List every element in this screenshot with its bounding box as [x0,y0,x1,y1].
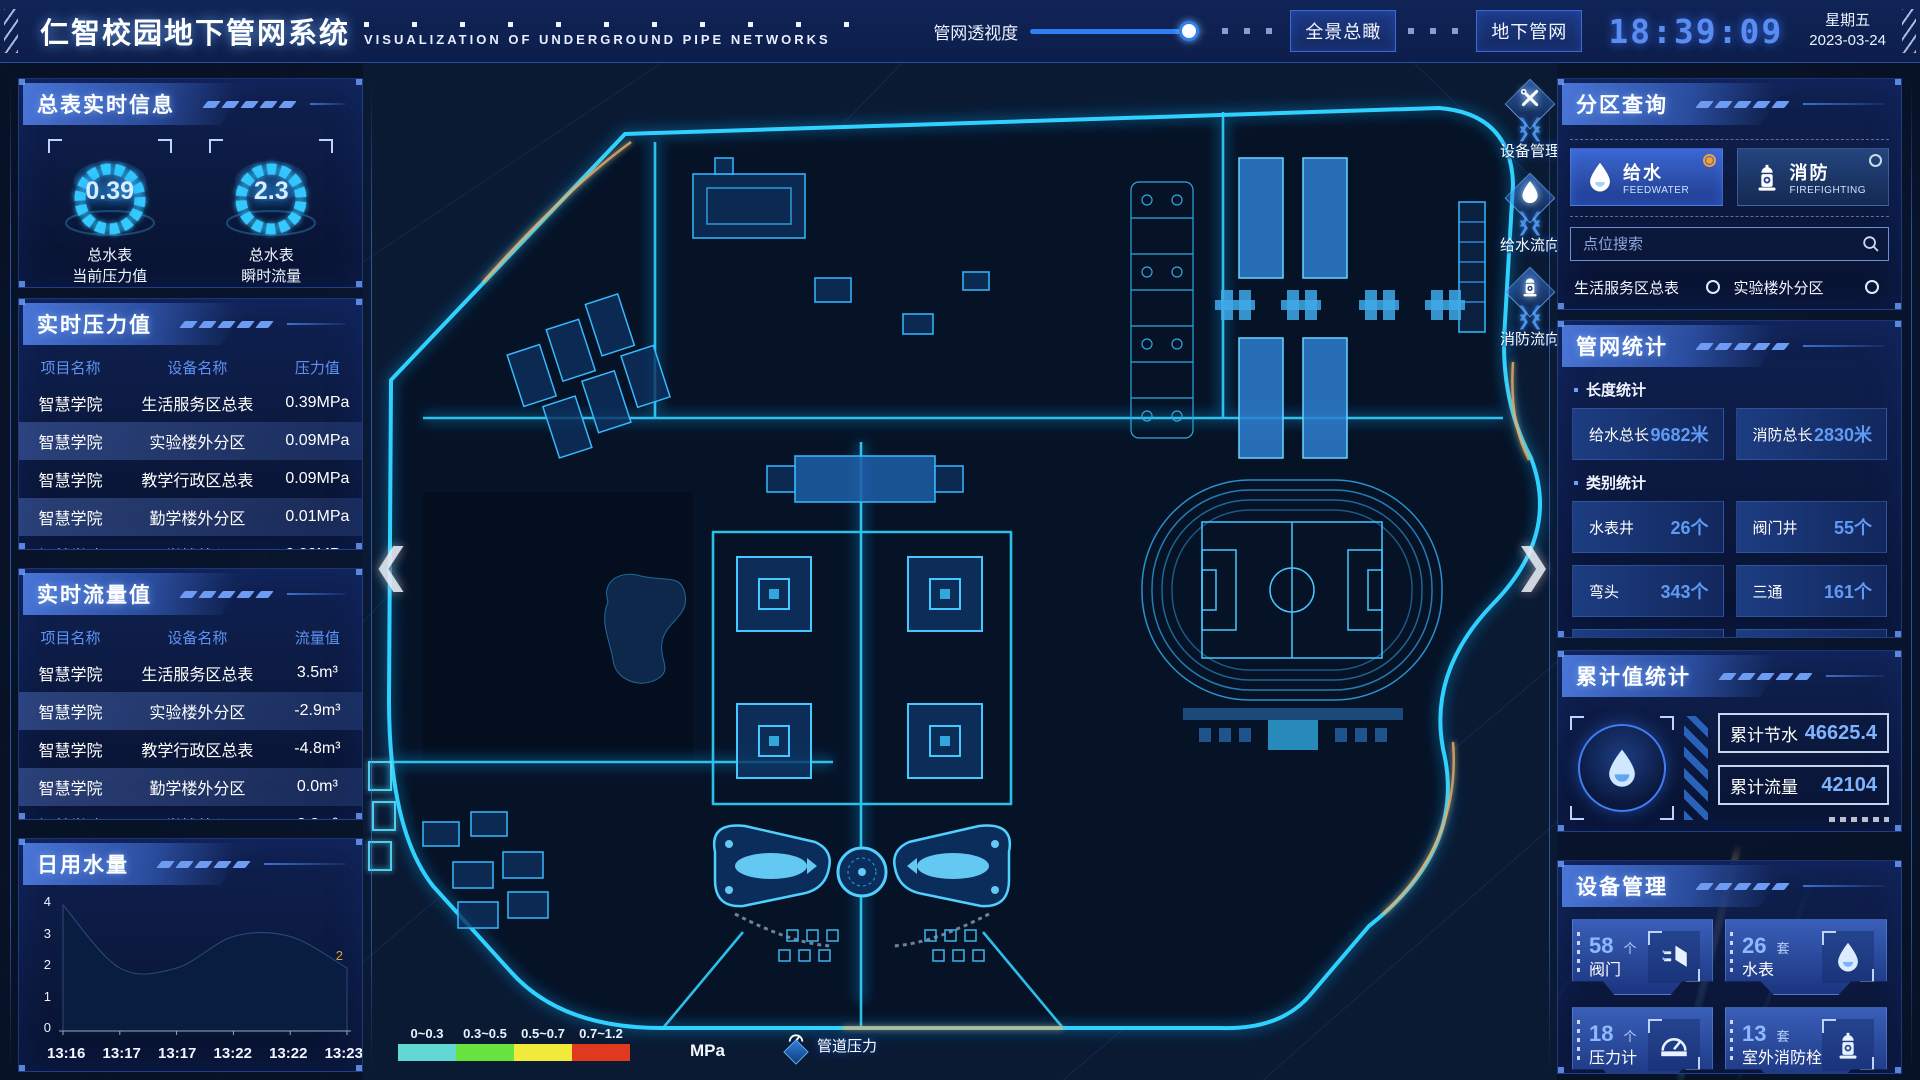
device-card-water-meters[interactable]: 26套 水表 [1725,919,1887,995]
slider-thumb[interactable] [1179,21,1199,41]
legend-swatch [456,1044,514,1061]
chart-x-tick: 13:16 [47,1045,85,1062]
list-item[interactable]: 实验楼外分区 [1730,269,1890,305]
water-drop-icon [1578,724,1666,812]
chart-y-axis: 01234 [31,893,53,1043]
panel-master-realtime-info: 总表实时信息 0.39 总水表 当前压力 [18,78,363,288]
left-rail-inner [371,80,372,1072]
pressure-gauge-icon [1648,1019,1700,1071]
panel-title: 实时流量值 [37,579,152,609]
panel-daily-water-usage: 日用水量 01234 2 13:1613:1713:1713:2213:2213… [18,838,363,1072]
app-subtitle: VISUALIZATION OF UNDERGROUND PIPE NETWOR… [364,32,864,47]
chart-x-tick: 13:22 [269,1045,307,1062]
stat-water-meter-wells: 水表井 26个 [1572,501,1724,553]
slashes-decoration [1698,343,1793,350]
gauge-master-flow: 2.3 总水表 瞬时流量 [201,141,341,287]
flow-table: 项目名称 设备名称 流量值 智慧学院生活服务区总表3.5m³ 智慧学院实验楼外分… [19,621,362,820]
table-row[interactable]: 智慧学院生活服务区总表0.39MPa [19,384,362,422]
top-header: 仁智校园地下管网系统 VISUALIZATION OF UNDERGROUND … [0,0,1920,63]
zone-point-list: 生活服务区总表 实验楼外分区 教学行政区总表 勤学楼外分区 砺学楼外分区 宿舍区… [1570,269,1889,310]
tab-feedwater[interactable]: 给水 FEEDWATER [1570,148,1723,206]
gauge-ring: 2.3 [211,147,331,243]
chart-plot-area: 2 [57,897,353,1043]
chart-y-tick: 0 [44,1020,51,1035]
panel-title: 分区查询 [1576,89,1668,119]
legend-unit: MPa [690,1041,725,1061]
map-arrow-right[interactable]: ❯ [1514,542,1553,588]
clock-date: 2023-03-24 [1809,31,1886,51]
stat-valve-wells: 阀门井 55个 [1736,501,1888,553]
radio-unselected-icon[interactable] [1706,280,1720,294]
device-card-pressure-gauges[interactable]: 18个 压力计 [1572,1007,1713,1074]
water-drop-icon [1583,160,1617,194]
chart-y-tick: 1 [44,989,51,1004]
right-rail [1911,80,1912,1072]
water-drop-icon [1508,170,1552,214]
dots-separator [1408,28,1464,34]
dashes-decoration [1829,817,1889,822]
clock-weekday: 星期五 [1825,11,1870,31]
category-stats-label: 类别统计 [1574,472,1901,493]
chart-x-tick: 13:17 [103,1045,141,1062]
underground-pipes-button[interactable]: 地下管网 [1476,10,1582,52]
stat-elbows: 弯头 343个 [1572,565,1724,617]
table-row[interactable]: 智慧学院教学行政区总表-4.8m³ [19,730,362,768]
stat-feedwater-length: 给水总长 9682米 [1572,408,1724,460]
table-row[interactable]: 智慧学院砺学楼外分区2.3m³ [19,806,362,820]
length-stats-label: 长度统计 [1574,379,1901,400]
chart-y-tick: 3 [44,926,51,941]
panel-device-management: 设备管理 58个 阀门 26套 [1557,860,1902,1074]
table-row[interactable]: 智慧学院生活服务区总表3.5m³ [19,654,362,692]
chart-y-tick: 4 [44,894,51,909]
list-item[interactable]: 教学行政区总表 [1570,305,1730,310]
gauge-master-pressure: 0.39 总水表 当前压力值 [40,141,180,287]
panel-realtime-flow: 实时流量值 项目名称 设备名称 流量值 智慧学院生活服务区总表3.5m³ 智慧学… [18,568,363,820]
legend-swatch [398,1044,456,1061]
wrench-icon [1508,76,1552,120]
valve-icon [1648,931,1700,983]
clock-time: 18:39:09 [1608,12,1783,51]
slashes-decoration [1698,883,1793,890]
slashes-decoration [182,321,277,328]
table-row[interactable]: 智慧学院勤学楼外分区0.01MPa [19,498,362,536]
dots-separator [1222,28,1278,34]
header-stripes-decoration [4,9,18,53]
panel-title: 日用水量 [37,849,129,879]
radio-unselected-icon[interactable] [1865,280,1879,294]
search-icon[interactable] [1861,234,1881,254]
pressure-legend: 0~0.3 0.3~0.5 0.5~0.7 0.7~1.2 MPa 管道压力 [398,1026,877,1061]
water-meter-icon [1822,931,1874,983]
panel-title: 实时压力值 [37,309,152,339]
panel-title: 管网统计 [1576,331,1668,361]
stat-box-clipped [1572,629,1724,638]
device-card-valves[interactable]: 58个 阀门 [1572,919,1713,995]
hydrant-icon [1822,1019,1874,1071]
chart-x-tick: 13:23 [325,1045,363,1062]
hatch-decoration [1684,716,1708,820]
panel-realtime-pressure: 实时压力值 项目名称 设备名称 压力值 智慧学院生活服务区总表0.39MPa 智… [18,298,363,550]
daily-usage-chart: 01234 2 13:1613:1713:1713:2213:2213:23 [29,893,352,1069]
device-card-outdoor-hydrants[interactable]: 13套 室外消防栓 [1725,1007,1887,1074]
panel-title: 总表实时信息 [37,89,175,119]
pipe-transparency-slider[interactable] [1030,22,1210,40]
panel-title: 累计值统计 [1576,661,1691,691]
pressure-table: 项目名称 设备名称 压力值 智慧学院生活服务区总表0.39MPa 智慧学院实验楼… [19,351,362,550]
panel-pipe-network-stats: 管网统计 长度统计 给水总长 9682米 消防总长 2830米 类别统计 水表井… [1557,320,1902,638]
panorama-view-button[interactable]: 全景总瞰 [1290,10,1396,52]
slashes-decoration [205,101,300,108]
table-row[interactable]: 智慧学院实验楼外分区0.09MPa [19,422,362,460]
chart-x-axis: 13:1613:1713:1713:2213:2213:23 [47,1045,363,1062]
left-rail [10,80,11,1072]
transparency-label: 管网透视度 [933,19,1018,44]
cumulative-water-icon-frame [1570,716,1674,820]
clock: 18:39:09 星期五 2023-03-24 [1608,11,1886,52]
legend-swatch [514,1044,572,1061]
panel-zone-query: 分区查询 给水 FEEDWATER [1557,78,1902,310]
chart-x-tick: 13:22 [214,1045,252,1062]
slashes-decoration [159,861,254,868]
cumulative-flow: 累计流量 42104 [1718,765,1889,805]
app-root: 仁智校园地下管网系统 VISUALIZATION OF UNDERGROUND … [0,0,1920,1080]
table-row[interactable]: 智慧学院勤学楼外分区0.0m³ [19,768,362,806]
app-title: 仁智校园地下管网系统 [40,10,350,52]
radio-unselected-icon[interactable] [1869,154,1882,167]
table-row[interactable]: 智慧学院砺学楼外分区0.00MPa [19,536,362,550]
pipe-pressure-toggle[interactable]: 管道压力 [785,1029,877,1061]
dots-decoration [364,22,864,27]
stat-box-clipped [1736,629,1888,638]
slashes-decoration [182,591,277,598]
table-row[interactable]: 智慧学院实验楼外分区-2.9m³ [19,692,362,730]
campus-map-3d-view[interactable] [363,62,1557,1080]
list-item[interactable]: 生活服务区总表 [1570,269,1730,305]
svg-text:2: 2 [336,948,343,963]
roundabout [838,848,886,896]
chart-x-tick: 13:17 [158,1045,196,1062]
right-rail-inner [1549,80,1550,1072]
tab-firefighting[interactable]: 消防 FIREFIGHTING [1737,148,1890,206]
point-search-input[interactable] [1570,227,1889,261]
slashes-decoration [1698,101,1793,108]
hydrant-icon [1750,160,1784,194]
header-stripes-decoration [1902,9,1916,53]
legend-swatch [572,1044,630,1061]
table-row[interactable]: 智慧学院教学行政区总表0.09MPa [19,460,362,498]
dashed-divider [1570,216,1889,217]
gauge-ring: 0.39 [50,147,170,243]
slashes-decoration [1721,673,1816,680]
chart-y-tick: 2 [44,957,51,972]
stat-fire-length: 消防总长 2830米 [1736,408,1888,460]
stat-tees: 三通 161个 [1736,565,1888,617]
map-arrow-left[interactable]: ❮ [372,542,411,588]
panel-cumulative-stats: 累计值统计 累计节水 46625.4 累计流量 42104 [1557,650,1902,832]
hydrant-icon [1508,264,1552,308]
panel-title: 设备管理 [1576,871,1668,901]
cumulative-water-saved: 累计节水 46625.4 [1718,713,1889,753]
radio-selected-icon[interactable] [1703,154,1716,167]
list-item[interactable]: 勤学楼外分区 [1730,305,1890,310]
